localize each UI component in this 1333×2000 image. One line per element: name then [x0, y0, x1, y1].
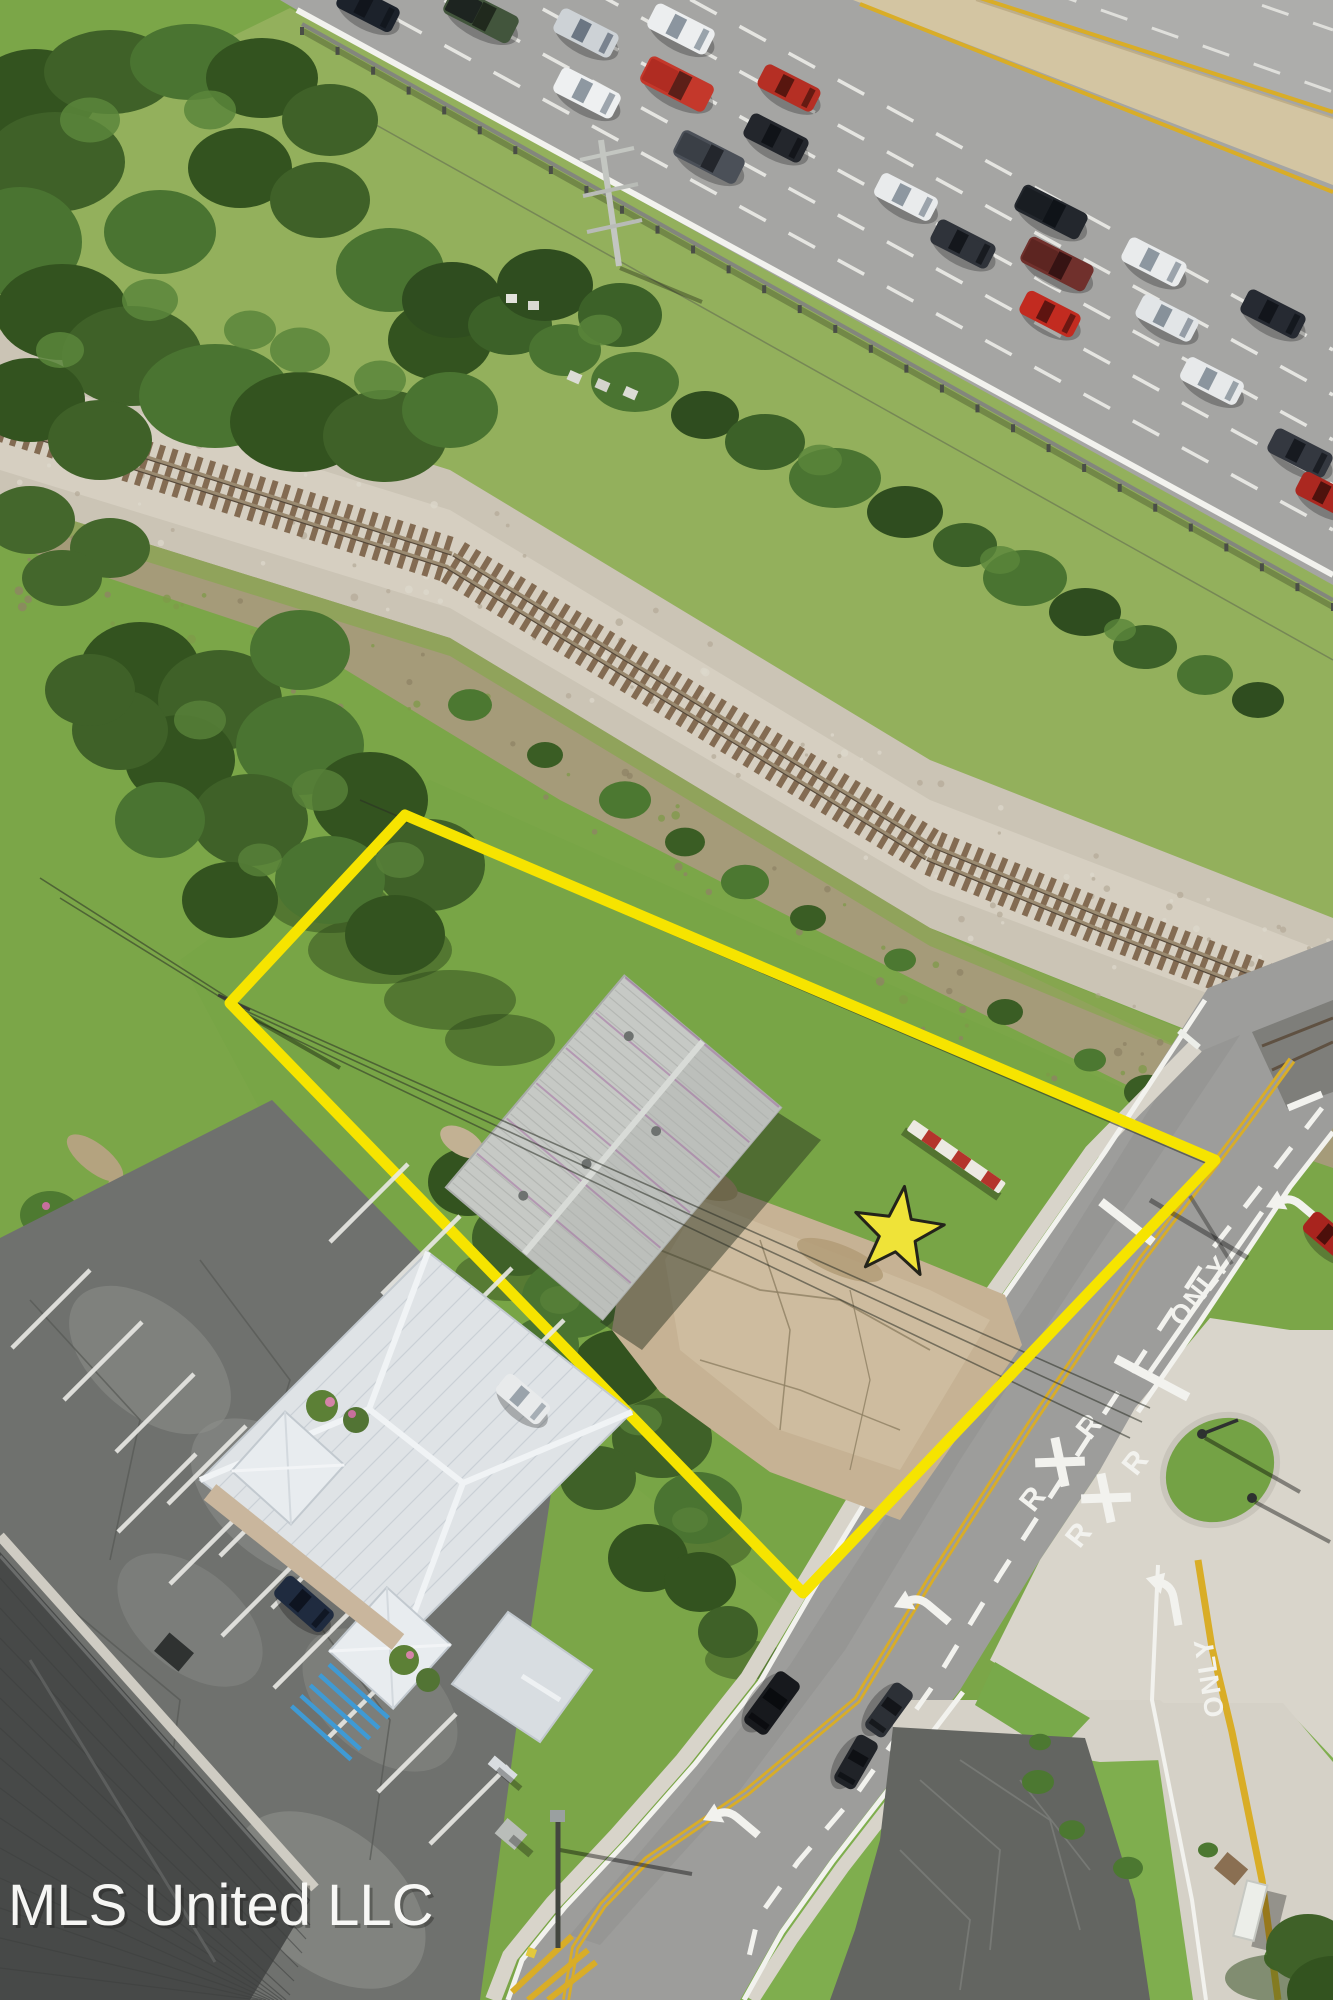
- speckle: [1157, 1039, 1164, 1046]
- speckle: [1123, 1042, 1127, 1046]
- guardrail-post: [1011, 424, 1015, 432]
- bush: [448, 689, 492, 721]
- pebble: [188, 474, 191, 477]
- speckle: [24, 596, 32, 604]
- tree-highlight: [60, 98, 120, 143]
- bush: [1074, 1048, 1106, 1071]
- bush: [1198, 1843, 1218, 1858]
- speckle: [671, 811, 680, 820]
- pebble: [523, 554, 527, 558]
- hedge-highlight: [980, 546, 1020, 574]
- aerial-photo: ONLYONLYRRRR: [0, 0, 1333, 2000]
- pebble: [831, 733, 834, 736]
- bush: [721, 865, 769, 900]
- pebble: [1063, 874, 1069, 880]
- bush: [1059, 1820, 1085, 1840]
- pebble: [304, 473, 308, 477]
- tree-canopy: [664, 1552, 736, 1612]
- pebble: [860, 758, 863, 761]
- guardrail-post: [833, 325, 837, 333]
- tree-canopy: [250, 610, 350, 690]
- tree-highlight: [184, 91, 236, 130]
- speckle: [706, 889, 712, 895]
- pebble: [506, 524, 510, 528]
- speckle: [1121, 1071, 1126, 1076]
- tree-highlight: [174, 701, 226, 740]
- pebble: [1104, 885, 1111, 892]
- tree-highlight: [238, 844, 282, 877]
- pebble: [1222, 969, 1225, 972]
- flower: [42, 1202, 50, 1210]
- tree-highlight: [36, 332, 84, 368]
- speckle: [567, 773, 571, 777]
- speckle: [180, 603, 183, 606]
- tree-canopy: [402, 372, 498, 448]
- pebble: [938, 780, 945, 787]
- bush: [1113, 1857, 1143, 1880]
- guardrail-post: [1260, 563, 1264, 571]
- pebble: [1258, 954, 1263, 959]
- speckle: [1051, 1075, 1057, 1081]
- pebble: [1090, 873, 1094, 877]
- pebble: [351, 594, 359, 602]
- speckle: [824, 886, 831, 893]
- pebble: [352, 563, 356, 567]
- equipment-box: [528, 301, 539, 310]
- speckle: [163, 595, 171, 603]
- pebble: [17, 480, 23, 486]
- pebble: [566, 693, 572, 699]
- speckle: [675, 804, 679, 808]
- speckle: [110, 621, 114, 625]
- guardrail-post: [1153, 504, 1157, 512]
- pebble: [158, 540, 164, 546]
- speckle: [622, 769, 630, 777]
- pebble: [1262, 927, 1267, 932]
- tree-canopy: [725, 414, 805, 470]
- hedge-highlight: [1104, 619, 1136, 641]
- speckle: [173, 604, 179, 610]
- pebble: [1092, 877, 1096, 881]
- pebble: [1193, 925, 1200, 932]
- pebble: [837, 754, 841, 758]
- pebble: [1277, 925, 1282, 930]
- pebble: [877, 750, 881, 754]
- guardrail-post: [798, 305, 802, 313]
- guardrail-post: [656, 226, 660, 234]
- tree-canopy: [270, 162, 370, 238]
- equipment-box: [506, 294, 517, 303]
- pebble: [430, 501, 437, 508]
- bush: [1022, 1770, 1054, 1794]
- speckle: [959, 1036, 963, 1040]
- speckle: [105, 592, 111, 598]
- pebble: [386, 608, 390, 612]
- guardrail-post: [1047, 444, 1051, 452]
- pebble: [438, 598, 443, 603]
- guardrail-post: [691, 245, 695, 253]
- guardrail-post: [1082, 464, 1086, 472]
- pebble: [589, 698, 594, 703]
- pebble: [1112, 965, 1116, 969]
- pebble: [958, 916, 965, 923]
- speckle: [1138, 1065, 1147, 1074]
- guardrail-post: [620, 206, 624, 214]
- speckle: [510, 741, 515, 746]
- tree-canopy: [698, 1606, 758, 1658]
- speckle: [965, 1024, 969, 1028]
- tree-canopy: [867, 486, 943, 538]
- pebble: [917, 780, 923, 786]
- bush: [665, 828, 705, 857]
- bush: [22, 550, 102, 606]
- pebble: [998, 831, 1001, 834]
- tree-highlight: [224, 311, 276, 350]
- speckle: [1114, 1048, 1122, 1056]
- pebble: [653, 608, 659, 614]
- pebble: [138, 502, 141, 505]
- guardrail-post: [584, 186, 588, 194]
- pebble: [356, 482, 361, 487]
- pebble: [423, 589, 429, 595]
- guardrail-post: [762, 285, 766, 293]
- bush: [987, 999, 1023, 1025]
- pebble: [1177, 892, 1183, 898]
- pebble: [707, 641, 713, 647]
- pebble: [841, 749, 849, 757]
- tree-shadow: [445, 1014, 555, 1066]
- pebble: [630, 685, 634, 689]
- speckle: [543, 794, 548, 799]
- pebble: [1093, 853, 1098, 858]
- pebble: [1169, 899, 1173, 903]
- speckle: [371, 644, 374, 647]
- pebble: [736, 773, 741, 778]
- speckle: [933, 961, 940, 968]
- bush: [790, 905, 826, 931]
- tree-canopy: [345, 895, 445, 975]
- pebble: [990, 902, 996, 908]
- pebble: [1166, 904, 1173, 911]
- guardrail-post: [336, 47, 340, 55]
- speckle: [881, 946, 885, 950]
- guardrail-post: [940, 385, 944, 393]
- speckle: [899, 995, 908, 1004]
- bush: [527, 742, 563, 768]
- hedge-highlight: [798, 445, 842, 476]
- pebble: [968, 936, 974, 942]
- tree-highlight: [122, 279, 178, 321]
- bush: [1029, 1734, 1051, 1751]
- speckle: [15, 586, 24, 595]
- speckle: [406, 679, 412, 685]
- pebble: [494, 511, 499, 516]
- pebble: [1132, 1005, 1135, 1008]
- speckle: [18, 602, 27, 611]
- pebble: [700, 668, 707, 675]
- speckle: [421, 653, 425, 657]
- speckle: [413, 700, 420, 707]
- bush: [599, 781, 651, 818]
- speckle: [1140, 1052, 1144, 1056]
- pebble: [615, 618, 623, 626]
- speckle: [658, 815, 665, 822]
- tree-canopy: [1232, 682, 1284, 718]
- pebble: [915, 845, 919, 849]
- tree-highlight: [270, 328, 330, 373]
- guardrail-post: [513, 146, 517, 154]
- speckle: [592, 829, 598, 835]
- pebble: [970, 889, 974, 893]
- guardrail-post: [371, 67, 375, 75]
- guardrail-post: [727, 265, 731, 273]
- tree-canopy: [115, 782, 205, 858]
- bush: [884, 948, 916, 971]
- tree-canopy: [45, 654, 135, 726]
- pebble: [801, 743, 805, 747]
- tree-highlight: [672, 1507, 708, 1532]
- guardrail-post: [869, 345, 873, 353]
- speckle: [876, 977, 885, 986]
- guardrail-post: [1224, 543, 1228, 551]
- pebble: [1206, 898, 1210, 902]
- guardrail-post: [904, 365, 908, 373]
- speckle: [674, 863, 682, 871]
- hedge-highlight: [578, 315, 622, 346]
- tree-canopy: [1177, 655, 1233, 695]
- guardrail-post: [975, 404, 979, 412]
- guardrail-post: [1118, 484, 1122, 492]
- guardrail-post: [549, 166, 553, 174]
- watermark-text: MLS United LLC: [8, 1873, 434, 1938]
- pebble: [805, 753, 808, 756]
- pebble: [47, 463, 51, 467]
- speckle: [1046, 1073, 1050, 1077]
- pebble: [510, 580, 515, 585]
- speckle: [408, 707, 411, 710]
- speckle: [959, 1006, 966, 1013]
- guardrail-post: [1295, 583, 1299, 591]
- guardrail-post: [407, 87, 411, 95]
- guardrail-post: [300, 27, 304, 35]
- tree-canopy: [48, 400, 152, 480]
- guardrail-post: [478, 126, 482, 134]
- speckle: [684, 872, 688, 876]
- pebble: [75, 491, 80, 496]
- speckle: [843, 903, 846, 906]
- pebble: [863, 855, 868, 860]
- tree-highlight: [292, 769, 348, 811]
- pebble: [477, 604, 482, 609]
- pebble: [1001, 921, 1004, 924]
- watermark: MLS United LLC MLS United LLC: [8, 1873, 437, 1941]
- pebble: [997, 912, 1003, 918]
- guardrail-post: [442, 106, 446, 114]
- tree-canopy: [282, 84, 378, 156]
- pebble: [261, 561, 266, 566]
- pebble: [998, 805, 1004, 811]
- speckle: [772, 866, 776, 870]
- guardrail-post: [1189, 524, 1193, 532]
- speckle: [957, 969, 964, 976]
- pebble: [405, 585, 413, 593]
- pebble: [386, 589, 390, 593]
- speckle: [202, 593, 207, 598]
- pebble: [171, 528, 175, 532]
- tree-highlight: [376, 842, 424, 878]
- tree-canopy: [104, 190, 216, 274]
- pebble: [711, 754, 716, 759]
- speckle: [237, 598, 243, 604]
- speckle: [946, 988, 952, 994]
- tree-highlight: [354, 361, 406, 400]
